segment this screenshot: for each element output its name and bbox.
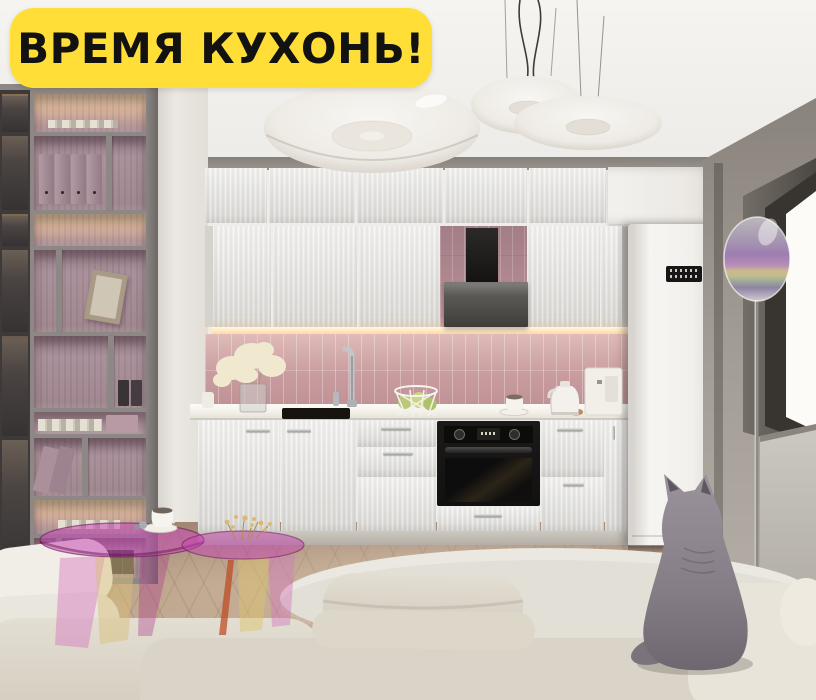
shelf-cell-books [34,412,146,434]
upper-cabinet-door [213,226,271,327]
books [38,419,102,431]
built-in-oven [437,421,540,506]
sideboard-top-edge [760,424,816,442]
dark-binder [118,380,129,406]
upper-cabinet-door [205,168,267,223]
shelf-cell [2,94,28,132]
oven-display-segments [481,432,496,435]
shelf-divider [56,538,62,578]
window-frame [765,172,816,445]
shelf-cell [34,336,146,408]
window-recess [743,158,816,452]
drawer-handle [474,514,502,517]
oven-handle [445,447,532,453]
binder [39,154,54,204]
refrigerator [628,224,718,546]
window-glass [786,191,816,431]
range-hood-chimney [466,228,498,284]
shelf-cell-leaning-binders [34,438,146,496]
right-wall-group [703,98,816,585]
upper-cabinet-door [529,168,606,223]
books [58,520,120,529]
shelf-cell [2,136,28,210]
cabinet-handle [246,429,270,432]
cabinet-above-fridge [608,167,718,224]
binder [71,154,86,204]
base-drawer [541,420,604,477]
shelf-cell-black-binders [34,538,146,578]
base-drawer [357,448,436,477]
oven-knob [454,429,465,440]
shelf-divider [82,438,88,496]
base-cabinet-door [198,420,280,531]
picture-frame-inner [90,275,123,319]
fridge-display [666,266,702,282]
bookshelf [0,84,158,584]
cabinet-end-strip [205,226,213,327]
dark-binder [131,380,142,406]
shelf-cell-led [34,94,146,132]
pink-tile-backsplash [205,334,630,406]
bookshelf-main-column [34,90,146,578]
shelf-cell [2,250,28,332]
shelf-divider [56,250,62,332]
promo-banner: ВРЕМЯ КУХОНЬ! [10,8,432,88]
base-cabinet-door [281,420,356,531]
shelf-cell [2,336,28,436]
shelf-divider [106,136,112,210]
fridge-door-seam [632,535,714,537]
upper-cabinet-door [445,168,527,223]
kitchen-promo-image: ВРЕМЯ КУХОНЬ! [0,0,816,700]
shelf-cell [2,440,28,578]
oven-display [477,428,500,440]
upper-cabinet-door [359,226,440,327]
books [48,120,118,128]
countertop [190,404,632,420]
floor-lamp-glass-bubble [724,217,790,301]
storage-box [106,415,138,432]
upper-cabinet-door [601,226,622,327]
drawer-handle [381,427,411,430]
picture-frame [84,269,128,324]
binder [55,154,70,204]
base-drawer [541,478,604,531]
kitchen-plinth [198,531,632,545]
cabinet-handle [612,426,615,440]
base-drawer [437,507,540,531]
drawer-handle [383,452,413,455]
upper-cabinet-door [357,168,443,223]
shelf-cell-binders [34,136,146,210]
shelf-cell-frame [34,250,146,332]
drawer-handle [557,428,583,431]
cabinet-handle [287,429,311,432]
drawer-handle [563,483,584,486]
range-hood-glass [444,282,528,327]
upper-cabinet-door [273,226,357,327]
dark-binders-row [68,550,134,574]
shelf-cell-led [34,500,146,534]
shelf-cell [2,214,28,246]
binder [87,154,102,204]
fridge-shadow [628,545,718,555]
oven-knob [509,429,520,440]
bookshelf-side-panel [146,84,158,584]
shelf-cell-led [34,214,146,246]
promo-banner-label: ВРЕМЯ КУХОНЬ! [17,24,425,73]
right-wall [703,98,816,585]
base-cabinet-door [605,420,630,531]
oven-door-glass [445,458,532,502]
base-drawer [357,478,436,531]
bookshelf-glass-column [0,90,30,578]
shelf-divider [108,336,114,408]
base-drawer [357,420,436,447]
lamp-bubble-highlight [755,216,781,248]
under-cabinet-light [212,327,630,334]
upper-cabinet-door [527,226,600,327]
upper-cabinet-door [269,168,355,223]
